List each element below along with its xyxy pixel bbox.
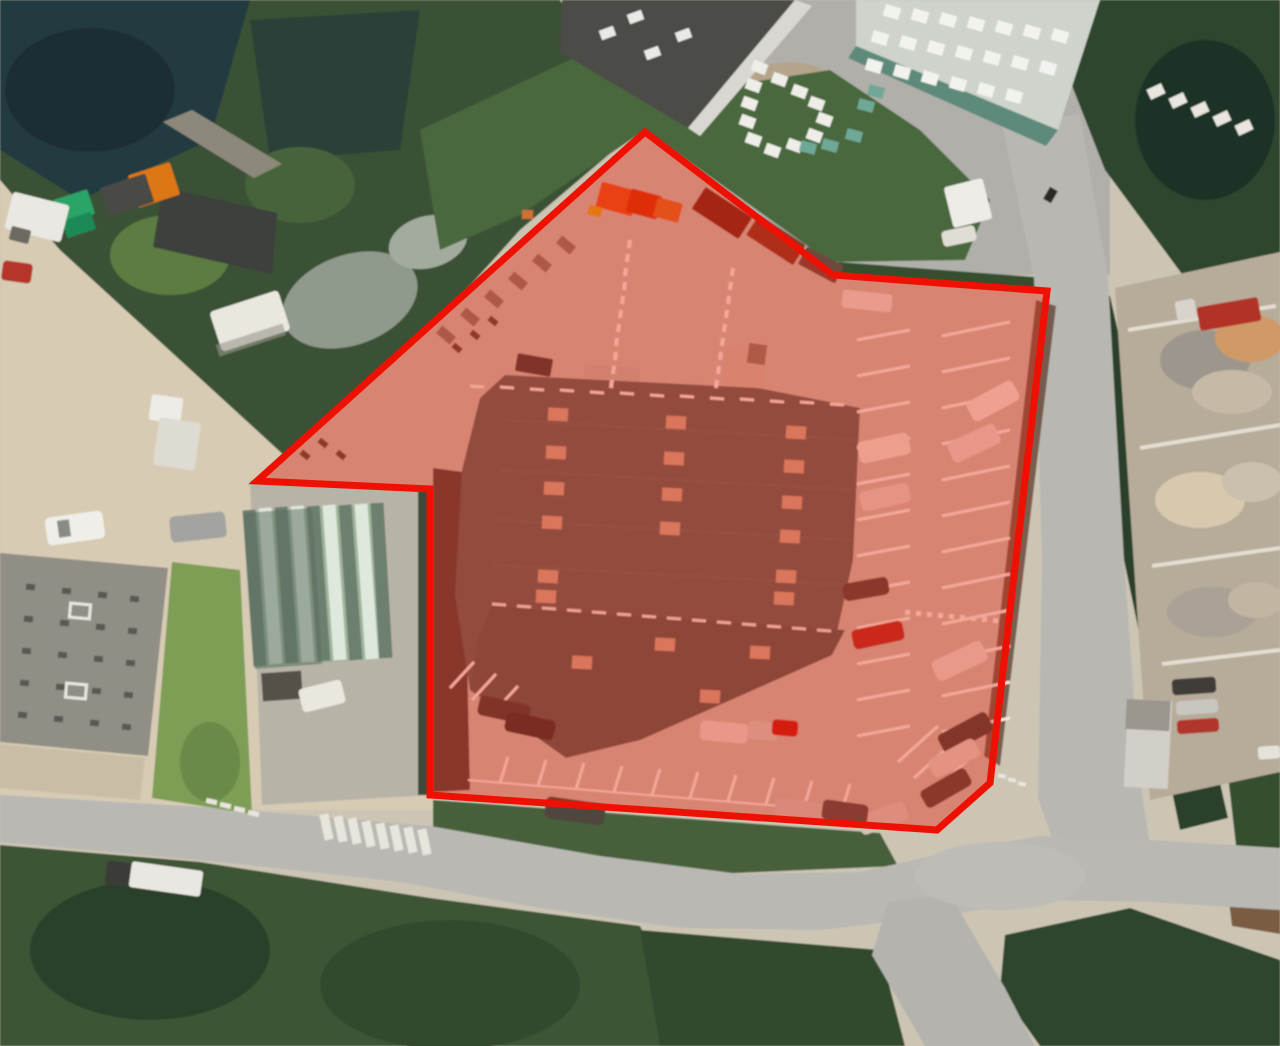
rubble-pile-5 — [1222, 462, 1280, 502]
tipper-truck-cab — [1174, 298, 1197, 321]
industrial-roof-vents-item — [90, 720, 99, 727]
trees-bottom-dark-2 — [320, 920, 580, 1046]
lawn-dark-patch — [180, 722, 240, 802]
truck-white-trailer — [153, 417, 201, 470]
parked-car-east-2 — [1176, 699, 1219, 716]
parked-car-east-3 — [1177, 718, 1220, 735]
industrial-roof-vents-item — [92, 688, 101, 695]
forklift-orange — [522, 210, 533, 219]
shadow-rocks-2 — [250, 10, 420, 160]
shed-east-roof — [1125, 699, 1171, 731]
car-white-left-glass — [57, 519, 71, 538]
industrial-roof-vents-item — [60, 620, 69, 627]
road-junction — [915, 842, 1085, 910]
industrial-roof-vents-item — [94, 656, 103, 663]
industrial-roof-vents-item — [124, 692, 133, 699]
aerial-satellite-map — [0, 0, 1280, 1046]
industrial-roof-vents-item — [54, 716, 63, 723]
industrial-roof-vents-item — [58, 652, 67, 659]
industrial-roof-vents-item — [26, 584, 35, 591]
shed-small-dark — [261, 671, 303, 702]
industrial-roof-vents-item — [22, 648, 31, 655]
parked-car-east-4 — [1258, 745, 1280, 760]
industrial-roof-vents-item — [126, 660, 135, 667]
aerial-map-viewport — [0, 0, 1280, 1046]
industrial-roof-vents-item — [56, 684, 65, 691]
industrial-roof-vents-item — [20, 680, 29, 687]
industrial-roof-vents-item — [96, 624, 105, 631]
trees-bottom-dark-1 — [30, 880, 270, 1020]
industrial-roof-vents-item — [24, 616, 33, 623]
car-red-left — [1, 260, 33, 284]
tree-shadow-dark — [5, 28, 175, 152]
industrial-roof-vents-item — [18, 712, 27, 719]
industrial-roof-vents-item — [62, 588, 71, 595]
industrial-roof-vents-item — [98, 592, 107, 599]
trees-top-right-dark — [1135, 40, 1275, 200]
barn-shaded-half — [243, 508, 322, 669]
industrial-building-roof — [0, 553, 168, 756]
parked-car-east-1 — [1171, 676, 1216, 695]
barn-stripes-dark-segment — [377, 503, 386, 658]
rubble-pile-3 — [1192, 370, 1272, 414]
industrial-roof-vents-item — [128, 628, 137, 635]
industrial-roof-vents-item — [122, 724, 131, 731]
industrial-roof-vents-item — [130, 596, 139, 603]
